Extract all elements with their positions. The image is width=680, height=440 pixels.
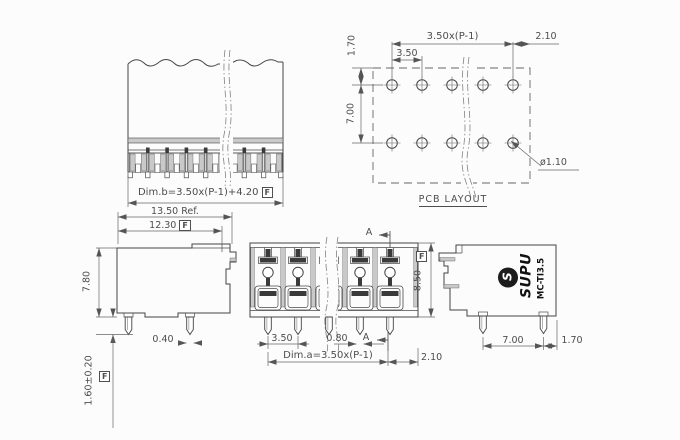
fd-section-label-bottom: A (359, 332, 373, 343)
supu-logo-glyph: S (503, 268, 514, 286)
sl-dim-pin-len: 1.60±0.20 (84, 355, 95, 407)
dim-b-label: Dim.b=3.50x(P-1)+4.20 F (128, 187, 283, 198)
sr-dim-pin-span: 7.00 (493, 335, 533, 346)
pcb-dim-end: 2.10 (531, 31, 561, 42)
pcb-dim-total: 3.50x(P-1) (392, 31, 513, 42)
technical-drawing-canvas: Dim.b=3.50x(P-1)+4.20 F 3.50x(P-1) 2.10 … (0, 0, 680, 440)
fd-dim-end: 2.10 (421, 352, 451, 363)
pcb-layout-view (352, 42, 579, 200)
pcb-dim-row-offset: 1.70 (347, 26, 358, 66)
sr-dim-end: 1.70 (558, 335, 586, 346)
pcb-title: PCB LAYOUT (393, 194, 513, 207)
fd-dim-height: 8.50 (413, 263, 424, 299)
sl-dim-pin-w: 0.40 (146, 334, 180, 345)
tolerance-flag: F (262, 187, 273, 198)
sl-dim-depth-label: 12.30 F (118, 220, 222, 231)
fd-dim-a: Dim.a=3.50x(P-1) (270, 350, 386, 361)
fd-dim-pin-w: 0.80 (317, 333, 357, 344)
pcb-dim-row-pitch: 7.00 (346, 94, 357, 134)
dim-b-text: Dim.b=3.50x(P-1)+4.20 (138, 187, 259, 198)
brand-name: SUPU (522, 252, 533, 300)
pcb-title-text: PCB LAYOUT (419, 194, 488, 207)
sl-dim-depth-ref: 13.50 Ref. (118, 206, 232, 217)
tolerance-flag: F (179, 220, 190, 231)
sl-dim-depth-text: 12.30 (149, 220, 176, 231)
fd-dim-pitch: 3.50 (262, 333, 302, 344)
front-view-detail (250, 231, 435, 366)
tolerance-flag: F (416, 251, 427, 262)
fd-section-label-top: A (362, 227, 376, 238)
sl-dim-height: 7.80 (82, 262, 93, 302)
side-view-left (96, 212, 236, 428)
pcb-dim-pitch: 3.50 (390, 48, 424, 59)
model-number: MC-TI3.5 (537, 256, 548, 302)
front-view-top (128, 48, 283, 207)
tolerance-flag: F (99, 371, 110, 382)
pcb-dim-hole-dia: ø1.10 (540, 157, 582, 168)
